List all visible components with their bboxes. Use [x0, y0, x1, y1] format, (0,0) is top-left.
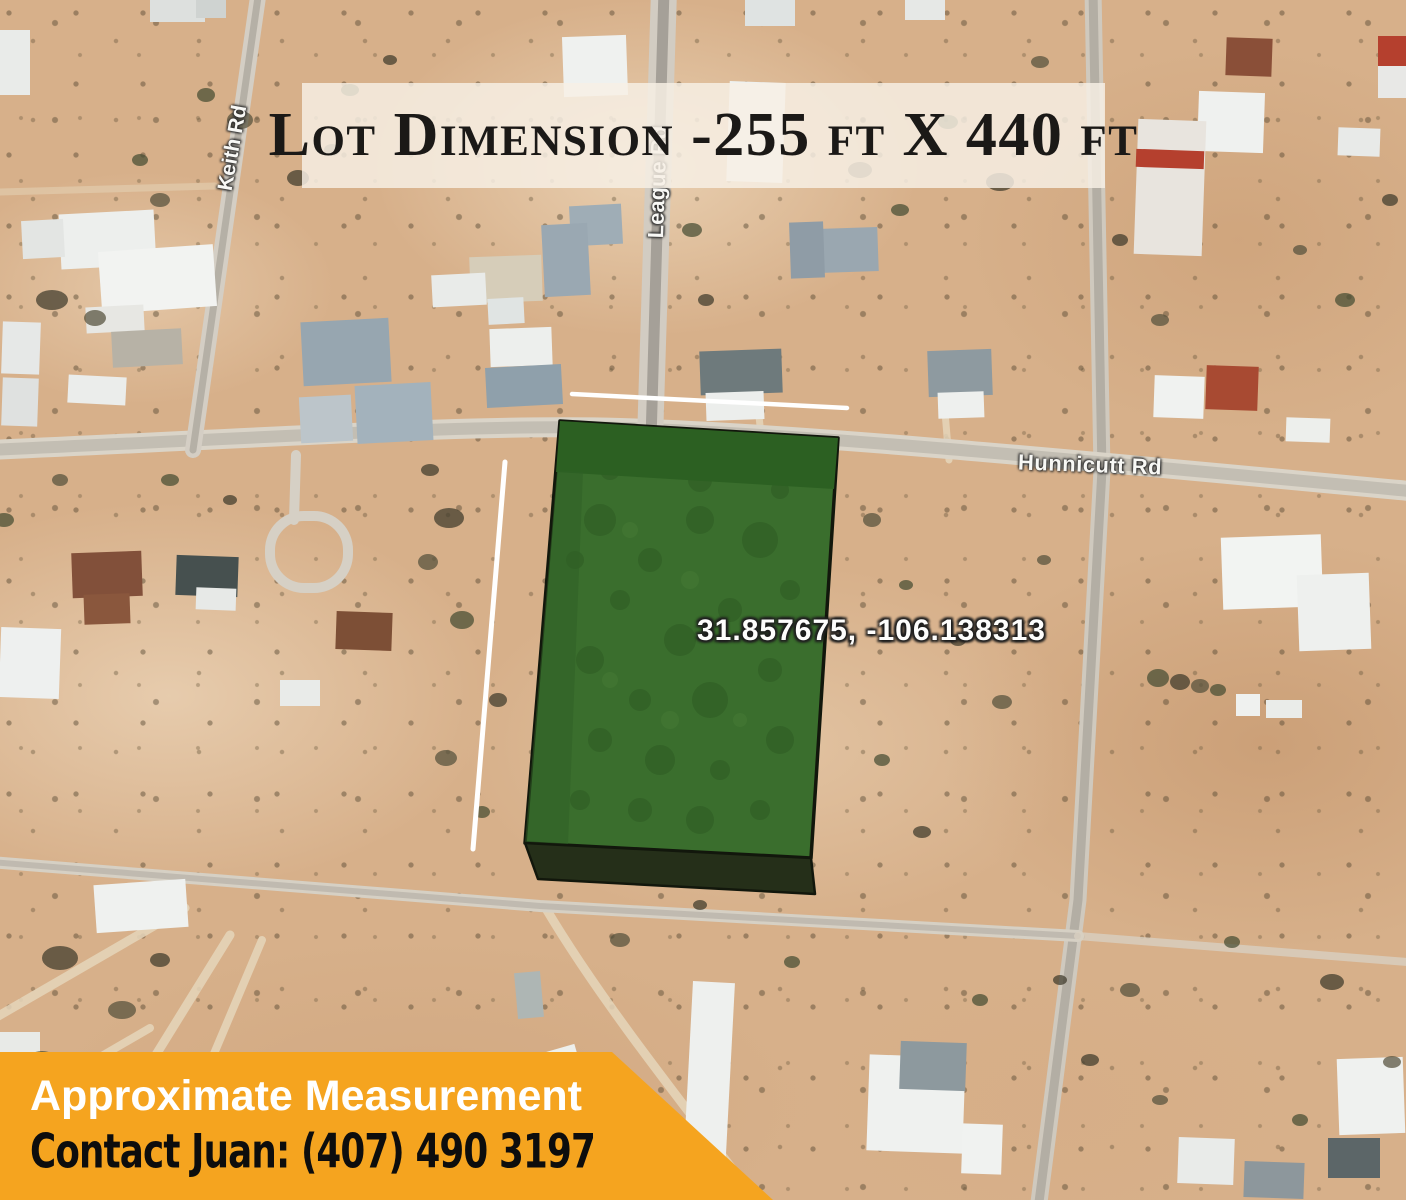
building — [71, 551, 143, 598]
building — [1328, 1138, 1380, 1178]
building — [0, 30, 30, 95]
parcel-mottle — [692, 682, 728, 718]
shrub — [132, 154, 148, 166]
building — [431, 273, 487, 308]
parcel-coordinates: 31.857675, -106.138313 — [697, 614, 1046, 648]
building — [699, 349, 782, 396]
shrub — [1382, 194, 1398, 206]
shrub — [1031, 56, 1049, 68]
shrub — [1320, 974, 1344, 990]
shrub — [150, 193, 170, 207]
shrub — [863, 513, 881, 527]
building — [938, 391, 985, 419]
building — [196, 587, 237, 610]
parcel-mottle — [710, 760, 730, 780]
shrub — [197, 88, 215, 102]
parcel-mottle — [584, 504, 616, 536]
footer-heading: Approximate Measurement — [30, 1072, 582, 1121]
shrub — [1210, 684, 1226, 696]
shrub — [418, 554, 438, 570]
building — [111, 328, 183, 368]
parcel-mottle — [750, 800, 770, 820]
shrub — [421, 464, 439, 476]
shrub — [992, 695, 1012, 709]
building — [487, 297, 524, 325]
shrub — [435, 750, 457, 766]
flyer: Keith Rd League Rd Hunnicutt Rd 31.85767… — [0, 0, 1406, 1200]
road-culdesac-loop — [270, 516, 348, 588]
parcel — [525, 421, 838, 894]
building — [196, 0, 226, 18]
building — [1266, 700, 1302, 718]
parcel-mottle — [645, 745, 675, 775]
shrub — [450, 611, 474, 629]
shrub — [84, 310, 106, 326]
parcel-mottle — [742, 522, 778, 558]
building — [299, 395, 353, 444]
parcel-mottle — [610, 590, 630, 610]
building — [961, 1123, 1003, 1174]
parcel-mottle — [766, 726, 794, 754]
shrub — [36, 290, 68, 310]
parcel-mottle — [588, 728, 612, 752]
shrub — [698, 294, 714, 306]
shrub — [42, 946, 78, 970]
building — [355, 382, 434, 444]
parcel-mottle — [758, 658, 782, 682]
building — [514, 971, 544, 1019]
building — [335, 611, 392, 651]
shrub — [1151, 314, 1169, 326]
building — [280, 680, 320, 706]
building — [905, 0, 945, 20]
building — [1134, 119, 1207, 256]
shrub — [1292, 1114, 1308, 1126]
building — [1378, 36, 1406, 66]
building — [93, 879, 188, 933]
shrub — [161, 474, 179, 486]
shrub — [434, 508, 464, 528]
building — [1153, 375, 1204, 419]
shrub — [1170, 674, 1190, 690]
title-text: Lot Dimension -255 ft X 440 ft — [269, 100, 1139, 171]
parcel-mottle — [570, 790, 590, 810]
building — [0, 627, 61, 699]
building — [899, 1041, 967, 1091]
shrub — [1152, 1095, 1168, 1105]
footer-contact: Contact Juan: (407) 490 3197 — [30, 1124, 595, 1179]
parcel-mottle — [628, 798, 652, 822]
building — [1205, 365, 1259, 411]
parcel-mottle — [664, 624, 696, 656]
building — [1197, 91, 1265, 153]
shrub — [891, 204, 909, 216]
building — [927, 349, 993, 397]
shrub — [874, 754, 890, 766]
parcel-mottle — [576, 646, 604, 674]
shrub — [383, 55, 397, 65]
shrub — [52, 474, 68, 486]
building — [817, 227, 878, 273]
shrub — [693, 900, 707, 910]
building — [1236, 694, 1260, 716]
building — [1243, 1161, 1304, 1199]
shrub — [223, 495, 237, 505]
parcel-mottle — [661, 711, 679, 729]
building — [1136, 149, 1205, 169]
building — [98, 244, 217, 314]
building — [67, 375, 126, 406]
building — [489, 327, 552, 367]
building — [1, 377, 39, 426]
parcel-mottle — [638, 548, 662, 572]
title-banner: Lot Dimension -255 ft X 440 ft — [302, 83, 1105, 188]
building — [789, 221, 825, 278]
shrub — [150, 953, 170, 967]
shrub — [1224, 936, 1240, 948]
parcel-mottle — [686, 506, 714, 534]
building — [1337, 1057, 1406, 1135]
parcel-mottle — [622, 522, 638, 538]
shrub — [682, 223, 702, 237]
parcel-mottle — [686, 806, 714, 834]
measurement-line-left — [473, 462, 505, 849]
shrub — [1191, 679, 1209, 693]
building — [1177, 1137, 1235, 1185]
parcel-mottle — [780, 580, 800, 600]
building — [1225, 37, 1272, 77]
building — [706, 391, 765, 421]
building — [1, 321, 41, 374]
shrub — [610, 933, 630, 947]
building — [1378, 66, 1406, 98]
building — [485, 364, 563, 408]
building — [1286, 417, 1331, 443]
shrub — [1147, 669, 1169, 687]
building — [300, 318, 391, 387]
shrub — [784, 956, 800, 968]
parcel-mottle — [629, 689, 651, 711]
shrub — [899, 580, 913, 590]
parcel-mottle — [602, 672, 618, 688]
building — [745, 0, 795, 26]
shrub — [1037, 555, 1051, 565]
road-label-hunnicutt: Hunnicutt Rd — [1018, 449, 1163, 480]
shrub — [489, 693, 507, 707]
parcel-mottle — [681, 571, 699, 589]
parcel-mottle — [733, 713, 747, 727]
building — [1297, 573, 1372, 651]
shrub — [972, 994, 988, 1006]
shrub — [1081, 1054, 1099, 1066]
shrub — [1112, 234, 1128, 246]
shrub — [1335, 293, 1355, 307]
shrub — [108, 1001, 136, 1019]
building — [83, 593, 130, 625]
building — [1338, 127, 1381, 156]
building — [541, 223, 591, 297]
shrub — [1120, 983, 1140, 997]
shrub — [1053, 975, 1067, 985]
shrub — [0, 513, 14, 527]
building — [21, 219, 65, 259]
shrub — [1293, 245, 1307, 255]
shrub — [1383, 1056, 1401, 1068]
road-culdesac-stub — [294, 455, 296, 520]
shrub — [913, 826, 931, 838]
